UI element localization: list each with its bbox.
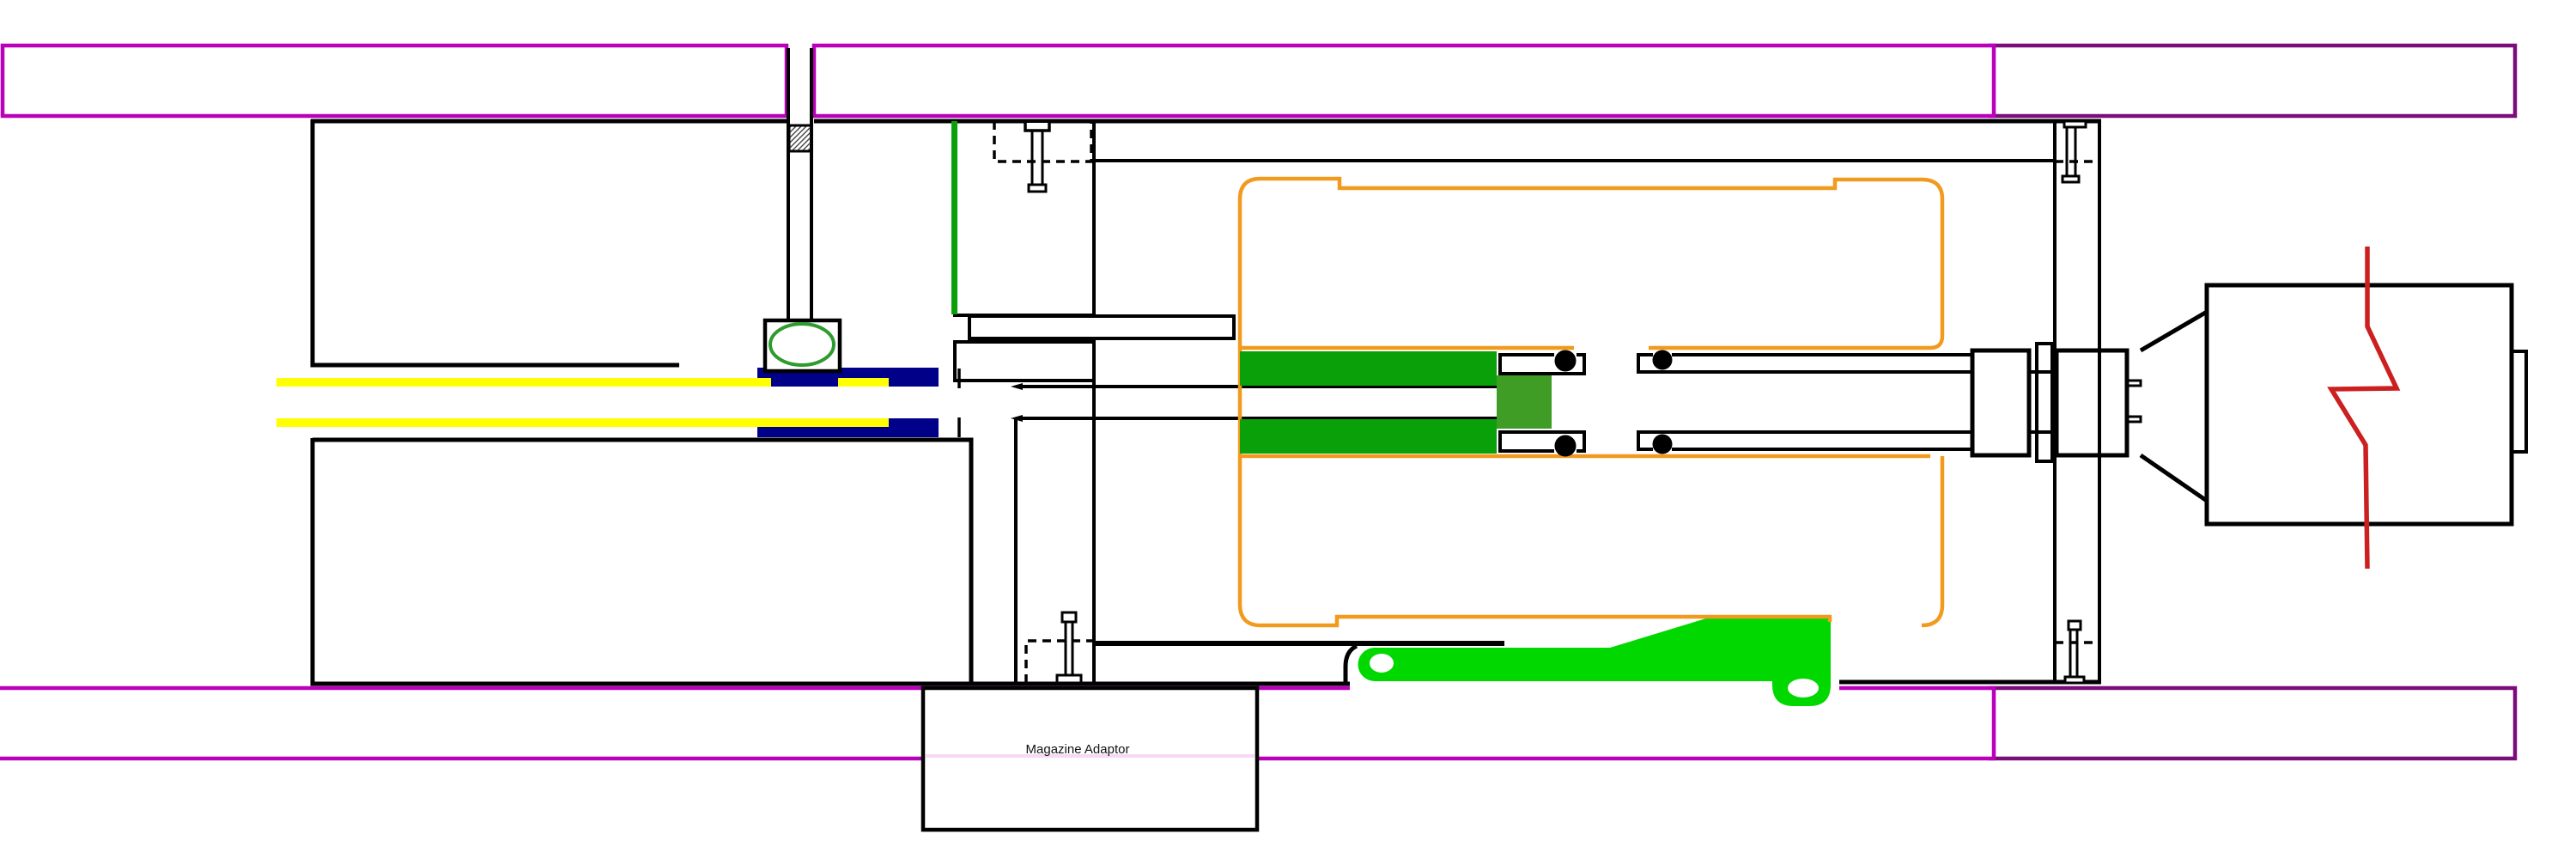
top-band-dark-segment [1990, 46, 2515, 116]
o-ring-bottom-rear [1655, 436, 1671, 453]
rod-yellow-bottom [276, 418, 889, 427]
screw-shaft-top-right [2067, 127, 2075, 176]
chamber-block-long [969, 316, 1234, 338]
top-band-main-segment [814, 46, 1994, 116]
stock-end-plate [2512, 351, 2526, 452]
o-ring-bottom-front [1557, 437, 1575, 455]
top-band-left-segment [3, 46, 787, 116]
expansion-cone [2141, 312, 2207, 501]
end-flange-plate [2037, 344, 2052, 461]
screw-foot-bottom-right [2065, 677, 2084, 683]
housing-lower [313, 438, 2101, 684]
drawing-canvas: Magazine Adaptor [0, 0, 2576, 859]
lever-hole-front [1370, 654, 1394, 673]
chamber-block-lower [955, 342, 1094, 381]
cad-drawing: Magazine Adaptor [0, 0, 2576, 859]
screw-head-bottom-right [2069, 621, 2081, 630]
housing-upper-left [313, 119, 679, 365]
retaining-pin-assembly [788, 48, 811, 320]
screw-foot-top-right [2063, 176, 2079, 182]
piston-bottom-green [1240, 419, 1497, 454]
end-block-a [1972, 350, 2029, 455]
magazine-adaptor-box [923, 688, 1257, 830]
rod-tip-top [1011, 383, 1023, 390]
lever-slot-cutout [1350, 684, 1839, 694]
screw-shaft-bottom-right [2070, 630, 2077, 677]
rod-yellow-top-right [838, 378, 889, 387]
screw-foot-bottom-left [1057, 675, 1081, 683]
piston [1240, 351, 1552, 454]
screw-head-bottom-left [1062, 612, 1076, 622]
stock-assembly [2207, 247, 2526, 569]
chamber-block-upper [955, 121, 1094, 315]
magazine-well-walls [1016, 381, 1094, 684]
tube-outer-outline [1240, 179, 1942, 625]
gas-tube [1240, 179, 1942, 625]
screw-head-top-right [2064, 121, 2086, 127]
receiver-rear-walls [2055, 121, 2099, 682]
receiver-housing [311, 119, 2101, 684]
stock-block [2207, 285, 2512, 524]
rod-tube-lines [1674, 355, 1972, 449]
rod-yellow-top-left [276, 378, 771, 387]
outer-housing-bands [0, 46, 2515, 758]
hatched-pin-icon [789, 125, 811, 151]
barrel-group [276, 320, 939, 437]
push-rod [1011, 383, 1498, 422]
pin-stem [788, 48, 811, 320]
piston-top-green [1240, 351, 1497, 386]
o-ring-top-front [1557, 352, 1575, 370]
end-block-b [2057, 350, 2127, 455]
green-gasket-line [951, 121, 957, 314]
screw-foot-top-left [1029, 185, 1046, 192]
lever-hole-rear [1788, 679, 1819, 698]
lever-hook-outline [1346, 646, 1357, 685]
magazine-adaptor-label: Magazine Adaptor [1026, 742, 1130, 757]
screw-shaft-top-left [1032, 131, 1042, 185]
screw-shaft-bottom-left [1066, 622, 1072, 675]
bottom-band-dark-segment [1990, 688, 2515, 758]
magazine-adaptor: Magazine Adaptor [923, 688, 1257, 830]
piston-head-dark-green [1497, 375, 1552, 429]
o-ring-top-rear [1655, 352, 1671, 369]
tube-bottom-right-corner [1922, 456, 1942, 625]
spring-break-symbol [2331, 247, 2397, 569]
